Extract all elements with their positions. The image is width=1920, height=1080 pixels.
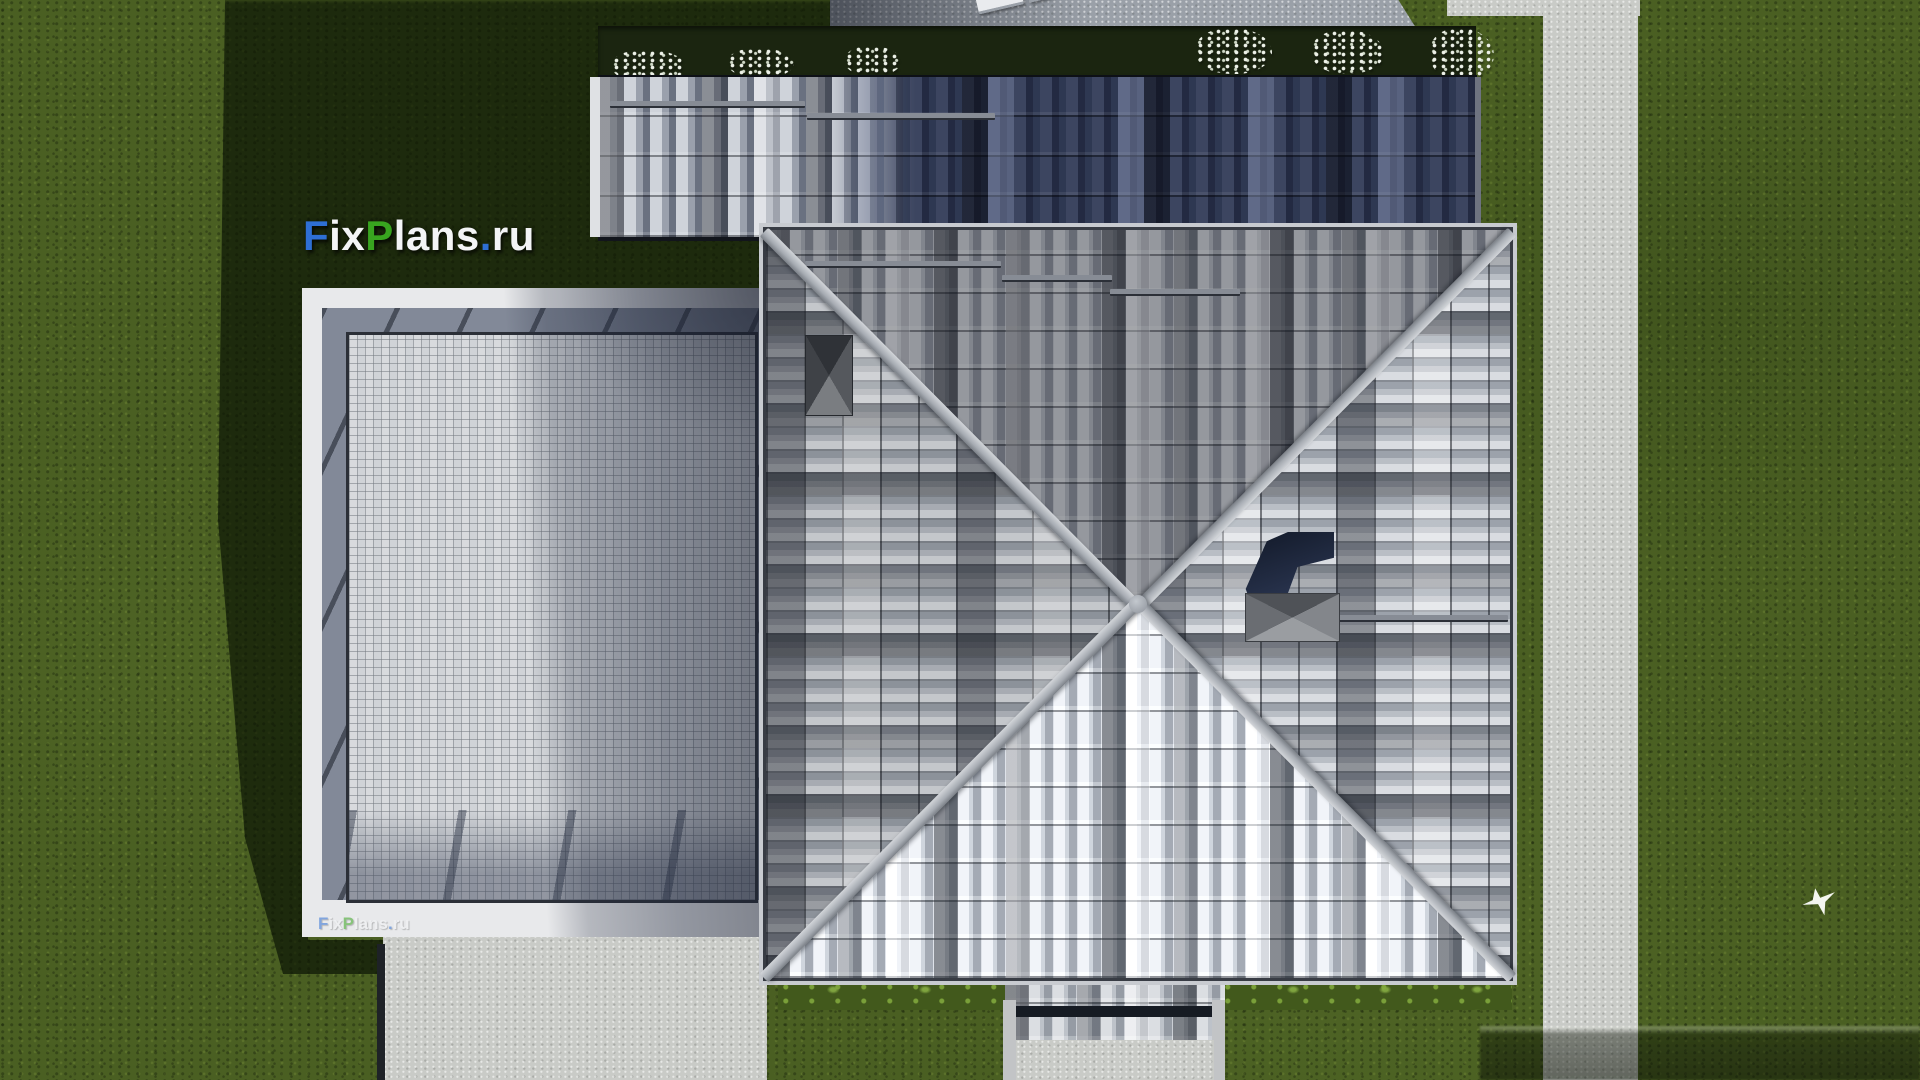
watermark-secondary: FixPlans.ru	[318, 914, 410, 934]
terrace	[302, 288, 770, 937]
chimney	[806, 336, 852, 415]
porch-roof	[1005, 970, 1225, 1042]
flower-cluster	[728, 48, 794, 78]
watermark: FixPlans.ru	[303, 212, 535, 260]
watermark-letter: F	[318, 914, 328, 933]
porch-eave-band	[1005, 1006, 1225, 1017]
fence-shadow-band	[1480, 1026, 1920, 1080]
snow-guard	[1338, 615, 1508, 622]
watermark-letter: ru	[393, 914, 410, 933]
watermark-letter: lans	[354, 914, 388, 933]
bird	[1800, 884, 1838, 918]
driveway	[830, 0, 1416, 28]
watermark-letter: ix	[328, 914, 342, 933]
upper-roof	[598, 75, 1477, 241]
flower-cluster	[1430, 28, 1494, 80]
watermark-letter: F	[303, 212, 329, 259]
flower-cluster	[845, 46, 901, 76]
watermark-letter: P	[343, 914, 354, 933]
chimney-cap	[1246, 594, 1339, 641]
watermark-letter: .	[480, 212, 492, 259]
snow-guard	[807, 113, 995, 120]
snow-guard	[610, 101, 805, 108]
porch-side-wall	[1003, 1000, 1016, 1080]
snow-guard	[1110, 289, 1240, 296]
flower-cluster	[1312, 30, 1384, 74]
main-roof	[766, 230, 1510, 978]
watermark-letter: lans	[394, 212, 480, 259]
porch-walkway	[1016, 1040, 1214, 1080]
aerial-house-render: FixPlans.ru FixPlans.ru	[0, 0, 1920, 1080]
roof-center-cap	[1129, 595, 1147, 613]
patio	[383, 935, 767, 1080]
flower-cluster	[1196, 28, 1272, 74]
upper-roof-fascia-left	[590, 77, 600, 237]
watermark-letter: ru	[492, 212, 535, 259]
upper-roof-fascia-right	[1475, 77, 1481, 237]
snow-guard	[1002, 275, 1112, 282]
walkway-right	[1543, 0, 1638, 1080]
watermark-letter: P	[365, 212, 394, 259]
watermark-letter: ix	[329, 212, 365, 259]
patio-seam	[377, 944, 385, 1080]
snow-guard	[805, 261, 1001, 268]
terrace-railing-line	[346, 332, 758, 903]
